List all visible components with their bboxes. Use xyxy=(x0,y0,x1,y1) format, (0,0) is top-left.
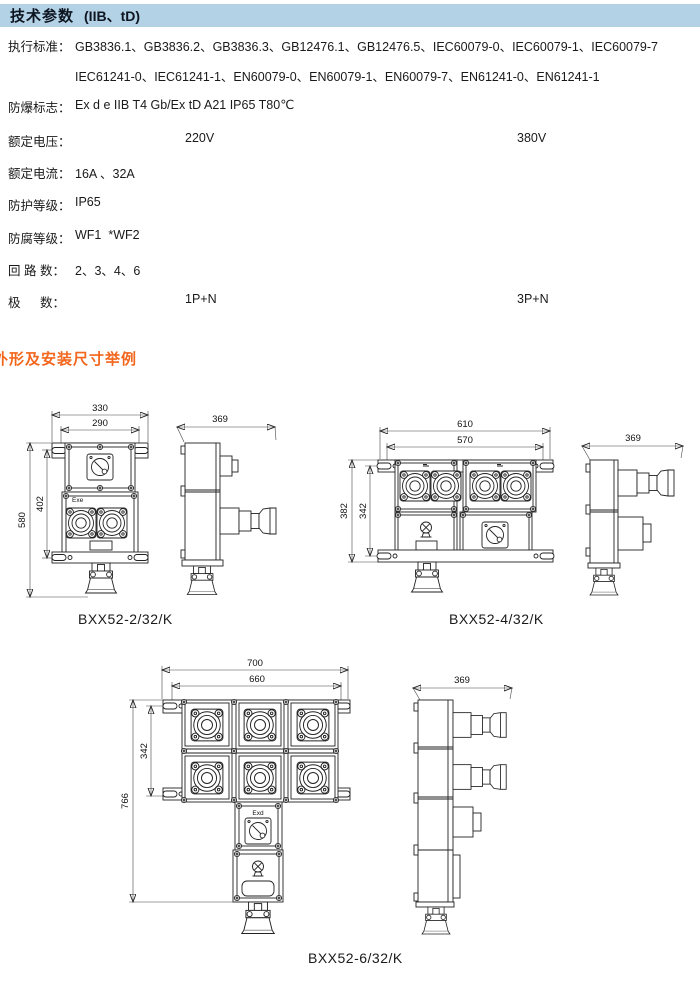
spec-label: 防护等级： xyxy=(8,195,71,214)
section-title-dimensions: 外形及安装尺寸举例 xyxy=(0,348,137,369)
bxx52-4-drawing: 610 570 382 342 369 xyxy=(340,400,700,605)
spec-value: GB3836.1、GB3836.2、GB3836.3、GB12476.1、GB1… xyxy=(75,36,658,55)
spec-row-standards: 执行标准： GB3836.1、GB3836.2、GB3836.3、GB12476… xyxy=(0,36,700,52)
dim-inner-width: 660 xyxy=(249,674,265,685)
ex-marking-label: Exe xyxy=(72,497,84,504)
bxx52-6-drawing: 700 660 766 342 369 Exd xyxy=(110,655,590,955)
spec-row-poles: 极 数： 1P+N 3P+N xyxy=(0,292,700,308)
spec-value: 220V xyxy=(185,131,214,145)
dim-outer-width: 700 xyxy=(247,658,263,669)
dim-depth: 369 xyxy=(625,433,641,444)
spec-label: 额定电流： xyxy=(8,163,71,182)
spec-label: 防腐等级： xyxy=(8,228,71,247)
spec-value-2: 380V xyxy=(517,131,546,145)
dim-depth: 369 xyxy=(454,675,470,686)
spec-row-current: 额定电流： 16A 、32A xyxy=(0,163,700,179)
dim-inner-height: 342 xyxy=(358,503,369,519)
dim-inner-width: 570 xyxy=(457,435,473,446)
spec-row-voltage: 额定电压： 220V 380V xyxy=(0,131,700,147)
page-title-group: (IIB、tD) xyxy=(84,6,140,26)
spec-value: 2、3、4、6 xyxy=(75,260,140,279)
spec-value: 16A 、32A xyxy=(75,163,135,182)
section-header-bar: 技术参数 (IIB、tD) xyxy=(0,4,700,27)
figure-caption: BXX52-4/32/K xyxy=(449,611,544,627)
spec-label: 防爆标志： xyxy=(8,97,71,116)
fig2-front-view xyxy=(377,460,554,592)
spec-value: WF1 *WF2 xyxy=(75,228,140,242)
spec-label: 额定电压： xyxy=(8,131,71,150)
fig1-front-view: Exe xyxy=(52,443,148,593)
spec-value: IP65 xyxy=(75,195,101,209)
catalog-page: { "header": { "title": "技术参数", "subtitle… xyxy=(0,0,700,984)
page-title: 技术参数 xyxy=(10,5,74,26)
dim-inner-height: 402 xyxy=(35,496,46,512)
spec-label: 执行标准： xyxy=(8,36,71,55)
dim-outer-width: 610 xyxy=(457,419,473,430)
spec-label: 回 路 数： xyxy=(8,260,65,279)
dim-inner-height: 342 xyxy=(139,743,150,759)
fig3-side-view xyxy=(414,700,506,934)
spec-label: 极 数： xyxy=(8,292,65,311)
fig1-side-view xyxy=(181,443,276,595)
fig2-side-view xyxy=(586,460,674,595)
spec-value-2: 3P+N xyxy=(517,292,549,306)
spec-value: IEC61241-0、IEC61241-1、EN60079-0、EN60079-… xyxy=(75,66,600,85)
spec-row-marking: 防爆标志： Ex d e IIB T4 Gb/Ex tD A21 IP65 T8… xyxy=(0,97,700,113)
dim-inner-width: 290 xyxy=(92,418,108,429)
dim-depth: 369 xyxy=(212,414,228,425)
spec-row-circuits: 回 路 数： 2、3、4、6 xyxy=(0,260,700,276)
spec-value: 1P+N xyxy=(185,292,217,306)
spec-row-corrosion: 防腐等级： WF1 *WF2 xyxy=(0,228,700,244)
dim-outer-height: 580 xyxy=(17,512,28,528)
dim-outer-height: 382 xyxy=(340,503,350,519)
dim-outer-height: 766 xyxy=(120,793,131,809)
dim-outer-width: 330 xyxy=(92,403,108,414)
figure-caption: BXX52-2/32/K xyxy=(78,611,173,627)
figure-caption: BXX52-6/32/K xyxy=(308,950,403,966)
spec-row-ip: 防护等级： IP65 xyxy=(0,195,700,211)
spec-value: Ex d e IIB T4 Gb/Ex tD A21 IP65 T80℃ xyxy=(75,97,294,112)
ex-marking-label: Exd xyxy=(252,810,264,817)
bxx52-2-drawing: 330 290 580 402 369 Exe xyxy=(12,400,292,605)
spec-row-standards-2: IEC61241-0、IEC61241-1、EN60079-0、EN60079-… xyxy=(0,66,700,82)
fig3-front-view: Exd xyxy=(163,699,350,933)
